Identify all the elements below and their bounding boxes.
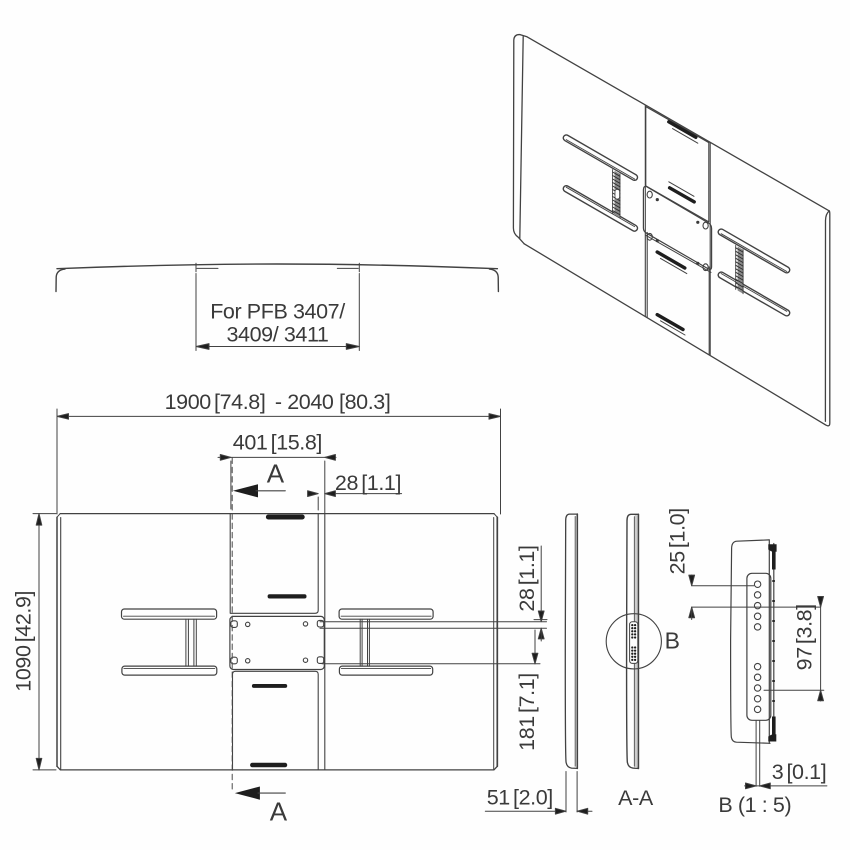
svg-text:181 [7.1]: 181 [7.1] (515, 673, 539, 751)
svg-text:97 [3.8]: 97 [3.8] (792, 604, 816, 670)
svg-text:1900 [74.8] - 2040 [80.3]: 1900 [74.8] - 2040 [80.3] (165, 390, 391, 414)
svg-text:28 [1.1]: 28 [1.1] (335, 471, 401, 495)
svg-text:For PFB 3407/: For PFB 3407/ (210, 300, 345, 324)
svg-text:B: B (665, 627, 680, 653)
svg-text:25 [1.0]: 25 [1.0] (665, 508, 689, 574)
svg-text:3 [0.1]: 3 [0.1] (772, 760, 827, 784)
svg-text:401 [15.8]: 401 [15.8] (233, 431, 322, 455)
svg-text:A-A: A-A (618, 786, 654, 810)
svg-text:B (1 : 5): B (1 : 5) (718, 793, 791, 817)
svg-text:3409/ 3411: 3409/ 3411 (226, 323, 328, 347)
svg-text:51 [2.0]: 51 [2.0] (487, 786, 553, 810)
svg-text:A: A (267, 459, 285, 489)
svg-text:28 [1.1]: 28 [1.1] (515, 545, 539, 611)
svg-text:A: A (270, 797, 288, 827)
svg-text:1090 [42.9]: 1090 [42.9] (12, 591, 36, 692)
